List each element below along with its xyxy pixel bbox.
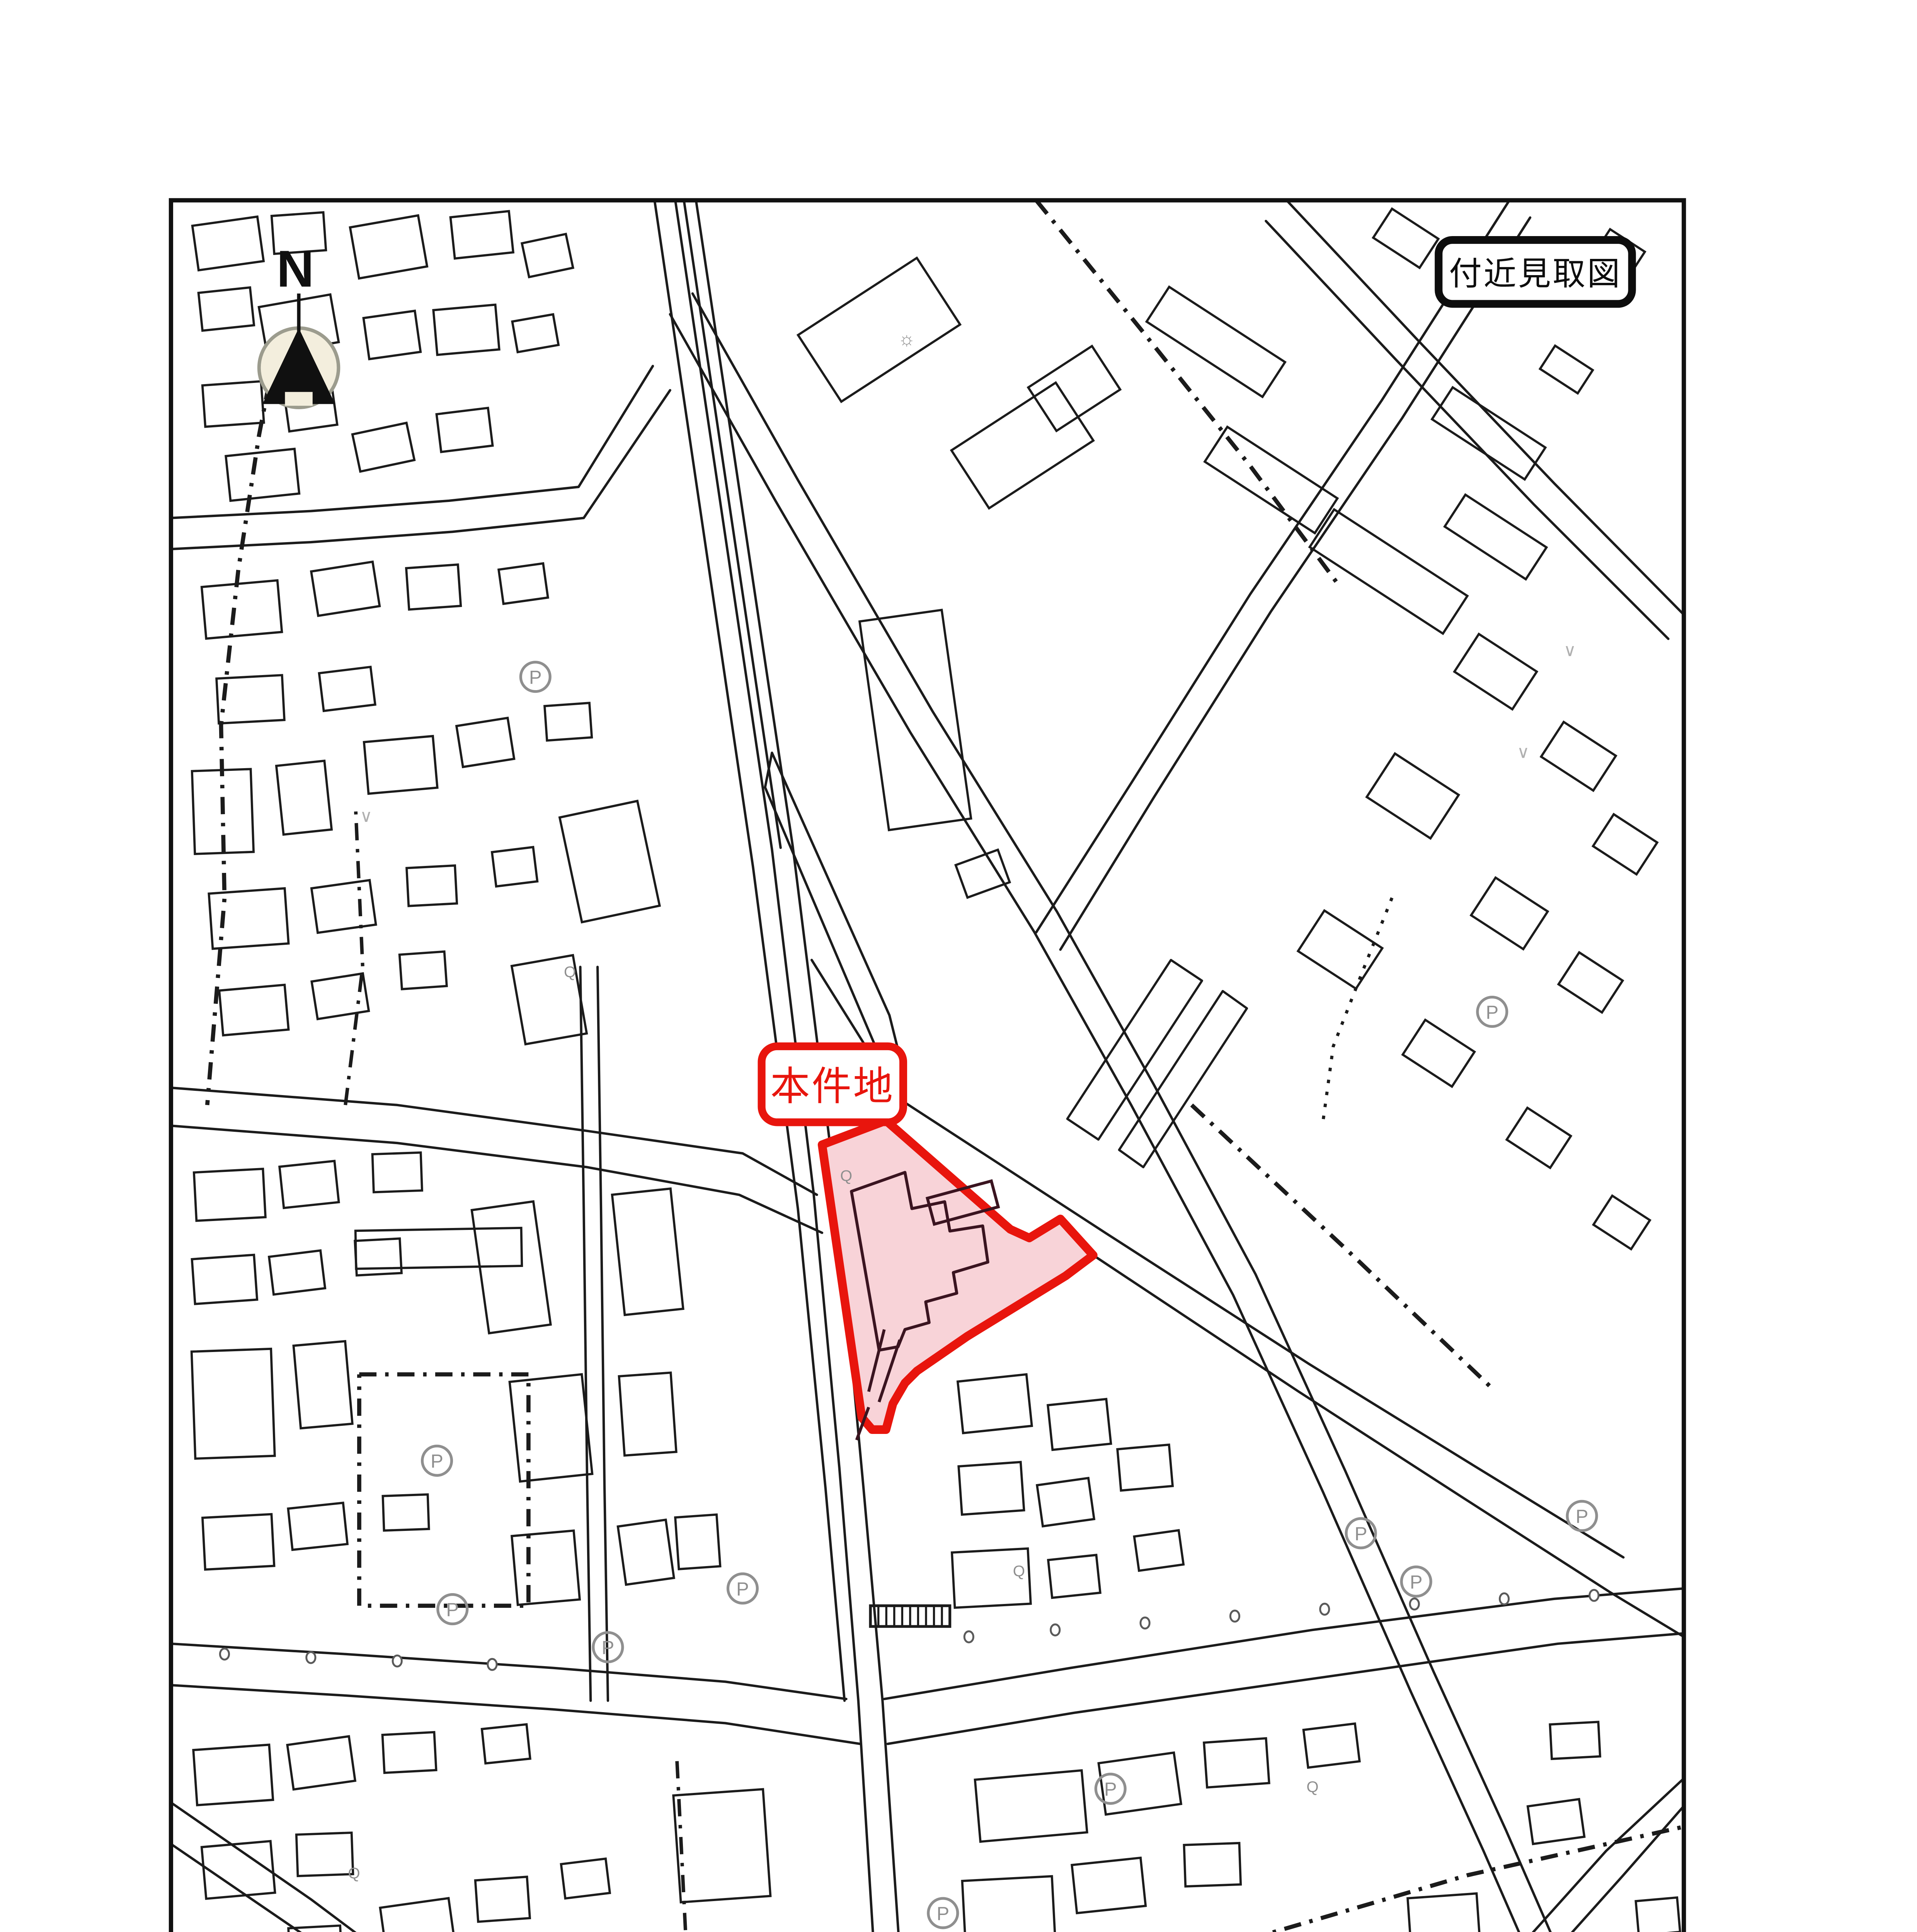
vicinity-map-canvas: PPPPPPPPPPPPQQQQQ∨∨∨∨☼ N 付近見取図 本件地 縮尺 1：… [0, 0, 1917, 1932]
map-title: 付近見取図 [1449, 255, 1622, 292]
street-circle [1141, 1617, 1149, 1629]
subject-site-text: 本件地 [770, 1064, 895, 1108]
street-circle [1410, 1599, 1419, 1610]
street-circle [1590, 1590, 1599, 1601]
parking-letter: P [1355, 1524, 1367, 1544]
street-circle [1500, 1593, 1508, 1604]
vicinity-map-page: PPPPPPPPPPPPQQQQQ∨∨∨∨☼ N 付近見取図 本件地 縮尺 1：… [0, 0, 1917, 1932]
parking-letter: P [1410, 1572, 1423, 1593]
check-symbol: ∨ [360, 807, 373, 826]
street-circle [488, 1659, 497, 1670]
survey-symbol: Q [564, 963, 576, 981]
street-circle [1051, 1624, 1060, 1636]
flower-symbol: ☼ [898, 329, 915, 350]
parking-letter: P [602, 1638, 615, 1658]
parking-letter: P [431, 1451, 443, 1472]
subject-site-label: 本件地 [762, 1046, 903, 1122]
street-circle [1320, 1604, 1329, 1615]
street-circle [220, 1648, 229, 1660]
street-circle [306, 1652, 315, 1663]
parking-letter: P [1576, 1506, 1588, 1527]
north-label: N [277, 240, 314, 298]
survey-symbol: Q [1013, 1563, 1025, 1580]
survey-symbol: Q [348, 1865, 360, 1882]
parking-letter: P [446, 1599, 459, 1620]
map-title-box: 付近見取図 [1439, 240, 1632, 304]
parking-letter: P [1104, 1779, 1117, 1800]
street-circle [964, 1631, 973, 1643]
check-symbol: ∨ [1517, 743, 1530, 762]
parking-letter: P [936, 1903, 949, 1924]
parking-letter: P [529, 667, 542, 688]
parking-letter: P [736, 1579, 749, 1600]
street-circle [393, 1655, 402, 1667]
street-circle [1230, 1611, 1239, 1622]
survey-symbol: Q [840, 1167, 852, 1184]
parking-letter: P [1486, 1002, 1498, 1023]
check-symbol: ∨ [1563, 641, 1576, 660]
north-arrow-notch [285, 392, 312, 406]
survey-symbol: Q [1306, 1778, 1318, 1796]
